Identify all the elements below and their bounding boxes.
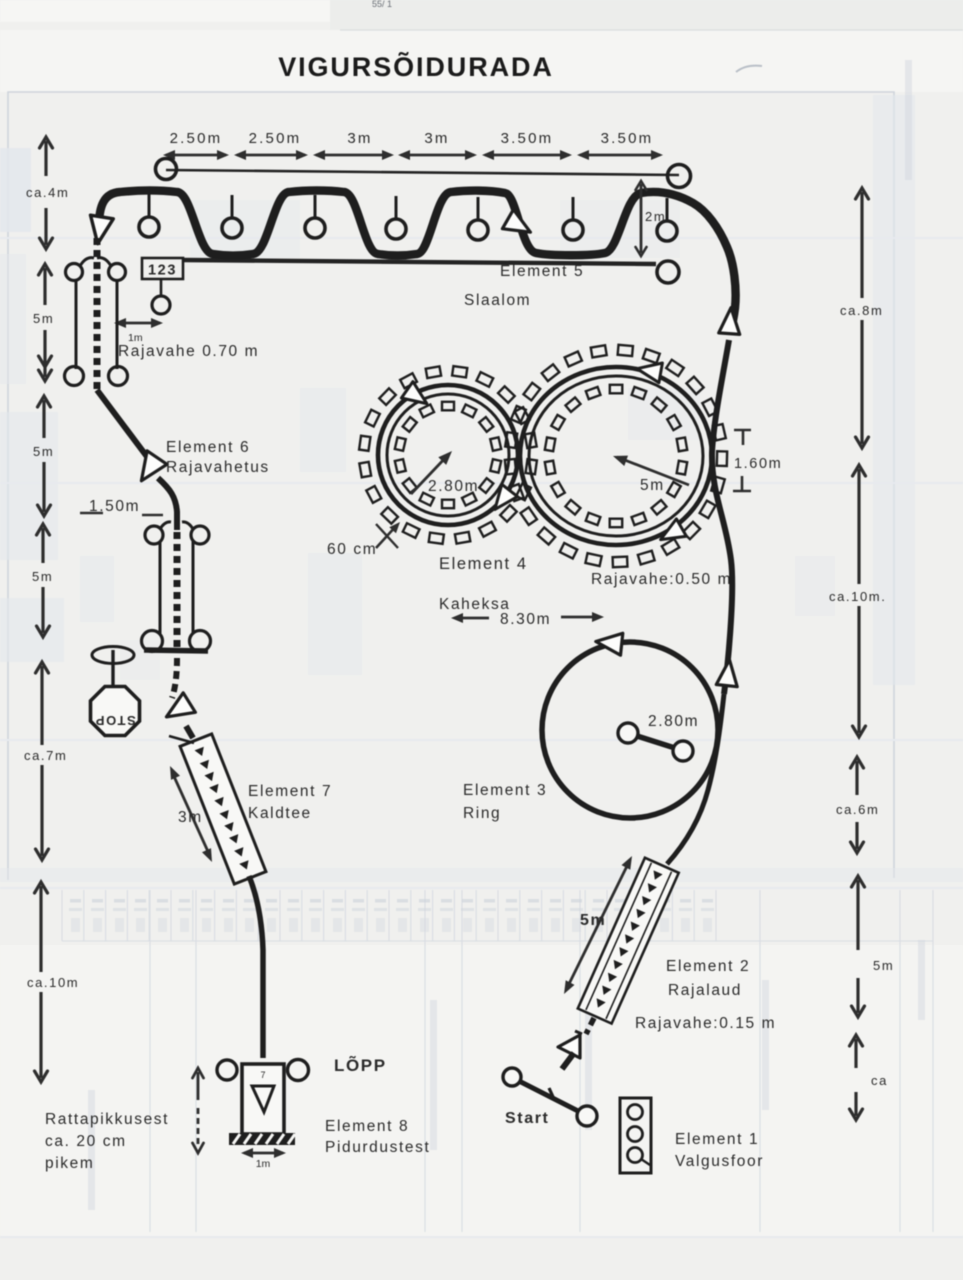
svg-text:3m: 3m bbox=[178, 809, 203, 826]
svg-text:Rajalaud: Rajalaud bbox=[668, 982, 742, 999]
svg-text:2.80m: 2.80m bbox=[428, 478, 479, 495]
svg-text:3.50m: 3.50m bbox=[501, 130, 554, 147]
svg-text:Kaldtee: Kaldtee bbox=[248, 805, 312, 822]
svg-text:7: 7 bbox=[260, 1070, 265, 1080]
svg-text:Element 3: Element 3 bbox=[463, 782, 547, 799]
svg-text:Element 7: Element 7 bbox=[248, 783, 332, 800]
svg-text:5m: 5m bbox=[580, 912, 606, 929]
svg-text:Element 8: Element 8 bbox=[325, 1118, 409, 1135]
svg-text:5m: 5m bbox=[640, 477, 665, 494]
svg-text:ca.6m: ca.6m bbox=[836, 802, 879, 817]
svg-text:ca.7m: ca.7m bbox=[24, 748, 67, 763]
svg-text:Rattapikkusest: Rattapikkusest bbox=[45, 1111, 169, 1128]
svg-text:123: 123 bbox=[148, 263, 177, 279]
svg-text:LÕPP: LÕPP bbox=[334, 1055, 387, 1075]
svg-text:55/ 1: 55/ 1 bbox=[372, 0, 392, 9]
svg-text:1.60m: 1.60m bbox=[734, 456, 782, 472]
svg-text:ca.10m: ca.10m bbox=[27, 975, 79, 990]
svg-text:Rajavahe:0.15 m: Rajavahe:0.15 m bbox=[635, 1015, 776, 1032]
svg-text:5m: 5m bbox=[33, 311, 54, 326]
svg-text:5m: 5m bbox=[33, 444, 54, 459]
svg-text:Rajavahe 0.70 m: Rajavahe 0.70 m bbox=[118, 343, 259, 360]
svg-text:Pidurdustest: Pidurdustest bbox=[325, 1139, 430, 1156]
svg-text:VIGURSÕIDURADA: VIGURSÕIDURADA bbox=[278, 51, 554, 82]
svg-text:Rajavahe:0.50 m: Rajavahe:0.50 m bbox=[591, 571, 732, 588]
svg-text:5m: 5m bbox=[873, 958, 894, 973]
svg-text:ca.10m.: ca.10m. bbox=[829, 589, 886, 604]
svg-text:ca. 20 cm: ca. 20 cm bbox=[45, 1133, 127, 1150]
svg-text:Rajavahetus: Rajavahetus bbox=[166, 459, 270, 476]
svg-text:Element 6: Element 6 bbox=[166, 439, 250, 456]
svg-text:Slaalom: Slaalom bbox=[464, 292, 531, 309]
svg-text:pikem: pikem bbox=[45, 1155, 94, 1172]
svg-text:Element 1: Element 1 bbox=[675, 1131, 759, 1148]
svg-text:Start: Start bbox=[505, 1110, 549, 1127]
svg-text:3m: 3m bbox=[424, 130, 449, 147]
svg-text:1m: 1m bbox=[256, 1158, 271, 1170]
svg-text:60 cm: 60 cm bbox=[327, 541, 377, 558]
svg-text:ca: ca bbox=[871, 1073, 888, 1088]
svg-text:3m: 3m bbox=[347, 130, 372, 147]
svg-text:Element 4: Element 4 bbox=[439, 555, 528, 573]
svg-text:ca.8m: ca.8m bbox=[840, 303, 883, 318]
svg-text:Ring: Ring bbox=[463, 805, 501, 822]
svg-text:2.50m: 2.50m bbox=[249, 130, 302, 147]
svg-text:ca.4m: ca.4m bbox=[26, 185, 69, 200]
svg-text:STOP: STOP bbox=[94, 713, 136, 728]
svg-text:5m: 5m bbox=[32, 569, 53, 584]
svg-text:3.50m: 3.50m bbox=[601, 130, 654, 147]
svg-text:Element 2: Element 2 bbox=[666, 958, 750, 975]
svg-text:8.30m: 8.30m bbox=[500, 611, 551, 628]
svg-text:2m: 2m bbox=[645, 209, 666, 224]
svg-text:2.80m: 2.80m bbox=[648, 713, 699, 730]
svg-text:Element 5: Element 5 bbox=[500, 263, 584, 280]
svg-text:Valgusfoor: Valgusfoor bbox=[675, 1153, 764, 1170]
svg-text:2.50m: 2.50m bbox=[170, 130, 223, 147]
